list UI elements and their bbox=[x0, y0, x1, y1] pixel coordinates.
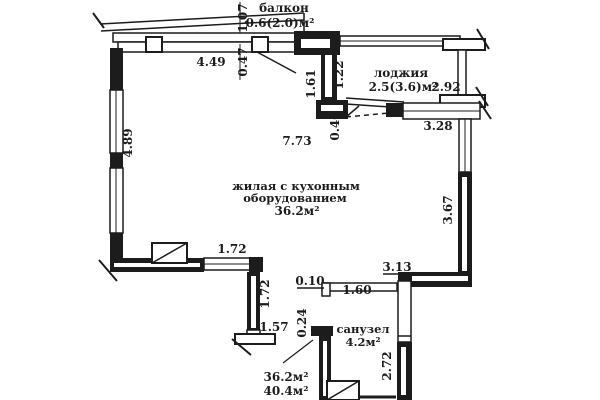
balcony-area: 0.6(2.0)м² bbox=[246, 16, 315, 30]
dim-loggia-bottom: 3.28 bbox=[423, 119, 452, 133]
loggia-label: лоджия bbox=[374, 66, 428, 80]
floor-plan-page: балкон 0.6(2.0)м² лоджия 2.5(3.6)м² жила… bbox=[0, 0, 600, 400]
dim-bath-stub: 0.24 bbox=[295, 308, 309, 337]
dim-bath-height: 2.72 bbox=[380, 351, 394, 380]
dim-balcony-depth: 1.07 bbox=[236, 3, 250, 32]
east-wall bbox=[458, 119, 472, 276]
bathroom-label: санузел bbox=[337, 322, 390, 336]
south-west-wall bbox=[110, 257, 275, 355]
dim-window-offset: 0.47 bbox=[236, 47, 250, 76]
dim-living-width: 7.73 bbox=[282, 134, 311, 148]
dim-loggia-door: 0.40 bbox=[328, 111, 342, 140]
living-area: 36.2м² bbox=[275, 204, 320, 218]
kitchen-shaft-symbol bbox=[152, 243, 187, 263]
bathroom-east-wall bbox=[397, 272, 412, 400]
living-label-line2: оборудованием bbox=[243, 191, 346, 205]
summary-living-area: 36.2м² bbox=[264, 370, 309, 384]
south-east-wall bbox=[408, 272, 472, 287]
dim-loggia-left-outer: 1.61 bbox=[304, 69, 318, 98]
north-window-wall bbox=[113, 31, 340, 55]
west-wall bbox=[99, 48, 123, 281]
balcony-label: балкон bbox=[259, 1, 309, 15]
summary-total-area: 40.4м² bbox=[264, 384, 309, 398]
dim-loggia-left-inner: 1.22 bbox=[332, 60, 346, 89]
floor-plan-drawing: балкон 0.6(2.0)м² лоджия 2.5(3.6)м² жила… bbox=[0, 0, 600, 400]
dim-south-stub: 1.57 bbox=[259, 320, 288, 334]
vent-shaft-symbol bbox=[327, 381, 359, 400]
dim-living-left: 4.89 bbox=[121, 128, 135, 157]
dim-bath-top: 3.13 bbox=[382, 260, 411, 274]
dim-loggia-right: 2.92 bbox=[431, 80, 460, 94]
dim-south-wall-drop: 1.72 bbox=[258, 279, 272, 308]
dim-balcony-width: 4.49 bbox=[196, 55, 225, 69]
dim-bath-gap: 0.10 bbox=[295, 274, 324, 288]
dim-living-right: 3.67 bbox=[441, 195, 455, 224]
loggia-area: 2.5(3.6)м² bbox=[369, 80, 438, 94]
dim-south-window: 1.72 bbox=[217, 242, 246, 256]
bathroom-area: 4.2м² bbox=[345, 335, 380, 349]
dim-bath-width: 1.60 bbox=[342, 283, 371, 297]
